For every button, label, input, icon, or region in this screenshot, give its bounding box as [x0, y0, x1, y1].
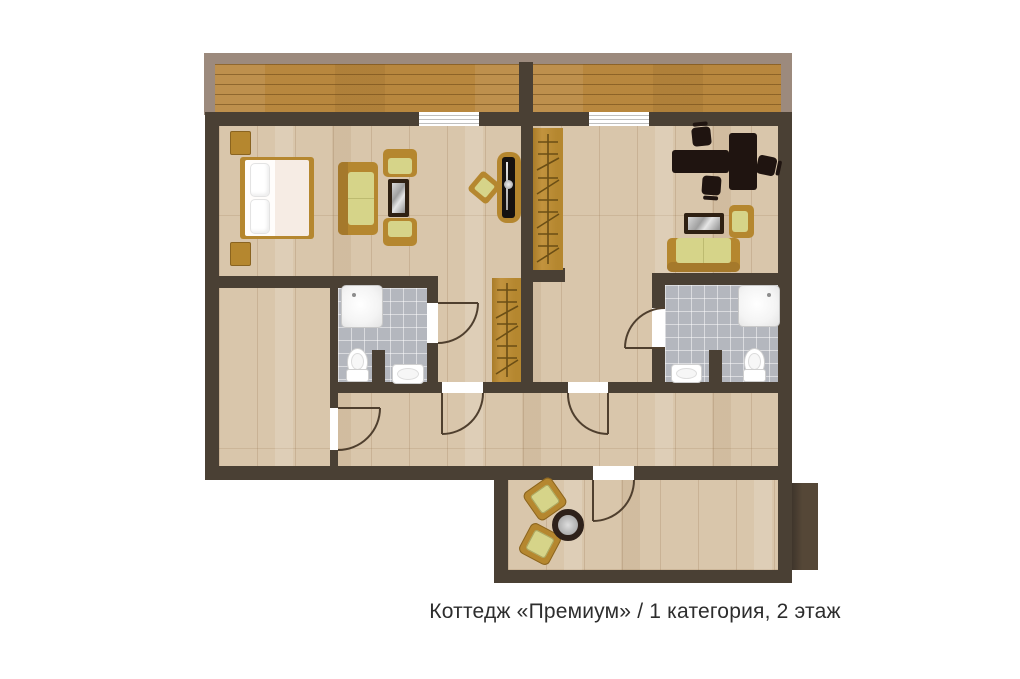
wardrobe-hatch	[492, 278, 521, 382]
toilet-icon	[346, 348, 369, 382]
sink-icon	[671, 364, 702, 383]
shower-icon	[341, 285, 383, 328]
wall-segment	[494, 570, 792, 583]
floor-plan: Коттедж «Премиум» / 1 категория, 2 этаж	[0, 0, 1020, 679]
door-opening-hall-left	[442, 382, 483, 393]
balcony-window-bedroom	[419, 112, 479, 126]
nightstand-icon	[230, 131, 251, 155]
sofa-cushions	[676, 238, 731, 263]
wall-segment	[533, 382, 568, 393]
wall-segment	[494, 466, 508, 583]
wall-segment	[330, 382, 442, 393]
wall-segment	[427, 288, 438, 303]
wall-segment	[634, 466, 792, 480]
plan-caption: Коттедж «Премиум» / 1 категория, 2 этаж	[405, 600, 865, 624]
tv-stand-icon	[497, 152, 521, 223]
office-desk-icon	[672, 150, 729, 173]
wall-segment	[652, 285, 665, 308]
armchair-icon	[383, 218, 417, 246]
toilet-icon	[743, 348, 766, 382]
armchair-cushion	[388, 158, 412, 174]
round-table-icon	[552, 509, 584, 541]
door-opening-entrance	[593, 466, 634, 480]
bedroom-sofa-icon	[338, 162, 378, 235]
wardrobe-hatch	[533, 128, 563, 270]
office-sofa-icon	[667, 238, 740, 272]
wardrobe-icon	[533, 128, 563, 270]
office-mirror-table-icon	[684, 213, 724, 234]
sofa-back	[667, 262, 740, 272]
mirror-table-icon	[388, 179, 409, 217]
door-opening-bathroom-right	[652, 308, 665, 348]
toilet-tank	[346, 369, 369, 382]
door-opening-hall-right	[568, 382, 608, 393]
stool-cushion	[474, 177, 495, 198]
double-bed-icon	[240, 157, 314, 239]
toilet-bowl-inner	[748, 353, 761, 370]
door-opening-bathroom-left	[427, 303, 438, 343]
wall-segment	[709, 350, 722, 382]
wall-segment	[219, 276, 438, 288]
balcony-right-deck	[533, 64, 781, 112]
wardrobe-icon	[492, 278, 521, 382]
wall-segment	[483, 382, 521, 393]
office-chair-icon	[755, 154, 778, 177]
sink-basin	[397, 368, 419, 380]
toilet-tank	[743, 369, 766, 382]
wall-segment	[521, 126, 533, 393]
sofa-cushions	[348, 172, 374, 225]
mirror-surface	[392, 183, 405, 213]
door-opening-storage	[330, 408, 338, 450]
chair-backrest	[693, 121, 708, 127]
sink-basin	[676, 368, 697, 379]
toilet-bowl-inner	[351, 353, 364, 370]
office-desk-return-icon	[729, 133, 757, 190]
wall-segment	[205, 126, 219, 480]
shower-icon	[738, 285, 780, 327]
balcony-left-deck	[215, 64, 519, 112]
office-chair-icon	[691, 126, 712, 147]
wall-segment	[372, 350, 385, 382]
nightstand-icon	[230, 242, 251, 266]
tv-stand-base	[504, 180, 513, 189]
balcony-window-office	[589, 112, 649, 126]
wall-segment	[533, 268, 565, 282]
chair-cushion	[530, 484, 561, 515]
armchair-cushion	[732, 211, 748, 232]
wall-segment	[519, 62, 533, 112]
wall-segment	[205, 466, 593, 480]
sofa-back	[338, 162, 348, 235]
shower-drain	[352, 293, 356, 297]
wall-segment	[330, 450, 338, 466]
wall-segment	[778, 126, 792, 583]
shower-drain	[767, 293, 771, 297]
office-chair-icon	[701, 175, 721, 195]
wall-segment	[608, 382, 778, 393]
armchair-cushion	[388, 221, 412, 237]
wall-segment	[652, 273, 778, 285]
armchair-icon	[383, 149, 417, 177]
sink-icon	[392, 364, 424, 384]
bed-pillow	[250, 163, 270, 197]
porch-steps	[792, 483, 818, 570]
mirror-surface	[688, 217, 720, 230]
office-armchair-icon	[729, 205, 754, 238]
chair-cushion	[525, 529, 555, 559]
bed-pillow	[250, 199, 270, 234]
